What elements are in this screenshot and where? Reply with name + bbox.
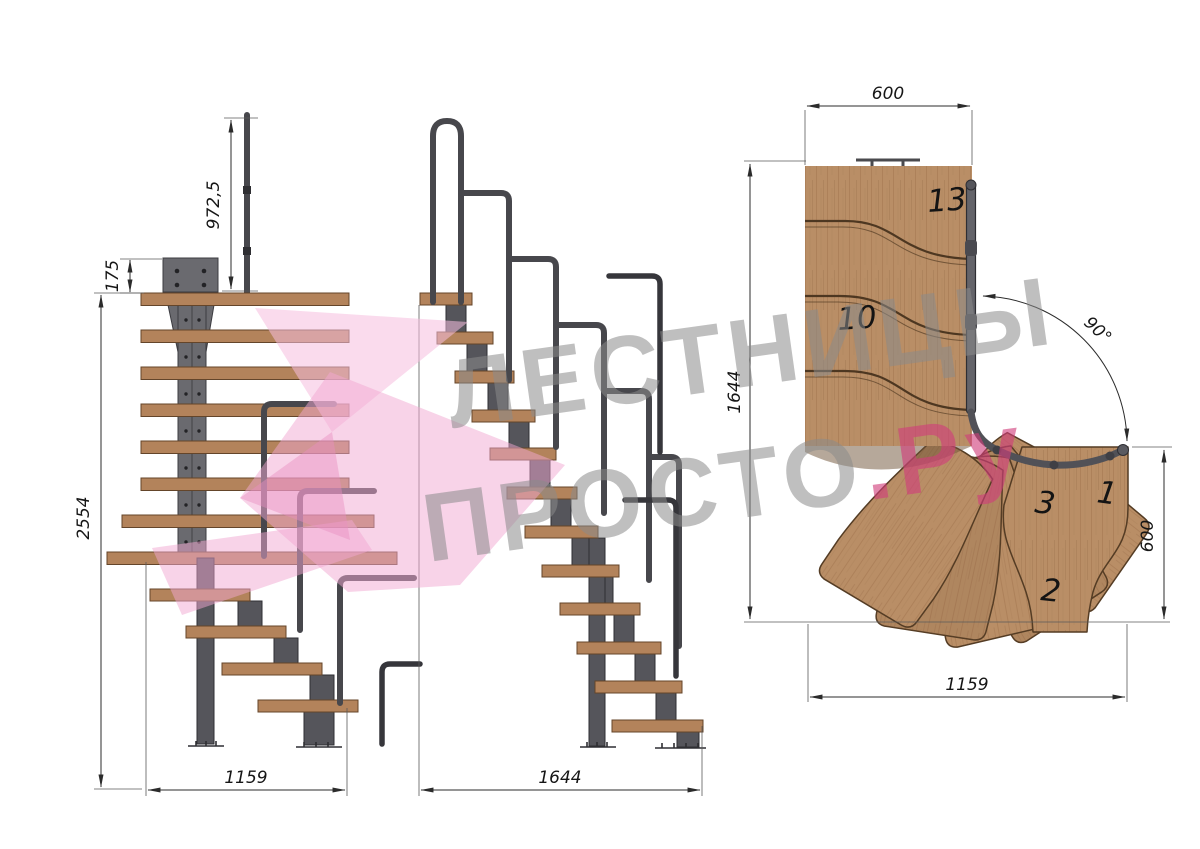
tread-label-13: 13 bbox=[926, 181, 968, 220]
dim-landing-width: 600 bbox=[872, 84, 904, 104]
dim-turn-angle: 90° bbox=[1080, 313, 1116, 348]
dim-plate-height: 175 bbox=[103, 260, 123, 292]
plan-top-bracket bbox=[856, 160, 920, 166]
dim-front-run-length: 1644 bbox=[538, 768, 581, 788]
staircase-drawing-page: 972,5 175 2554 1159 bbox=[0, 0, 1200, 849]
tread-label-2: 2 bbox=[1039, 572, 1062, 610]
staircase-technical-drawing: 972,5 175 2554 1159 bbox=[0, 0, 1200, 849]
dim-plan-length: 1159 bbox=[945, 675, 988, 695]
wall-mount-plate bbox=[163, 258, 218, 292]
dim-exit-width: 600 bbox=[1138, 520, 1158, 552]
watermark-line2-suffix: .Ру bbox=[856, 390, 1033, 521]
dim-total-height: 2554 bbox=[74, 496, 94, 539]
dim-side-run-length: 1159 bbox=[224, 768, 267, 788]
dim-rail-height: 972,5 bbox=[204, 181, 224, 230]
